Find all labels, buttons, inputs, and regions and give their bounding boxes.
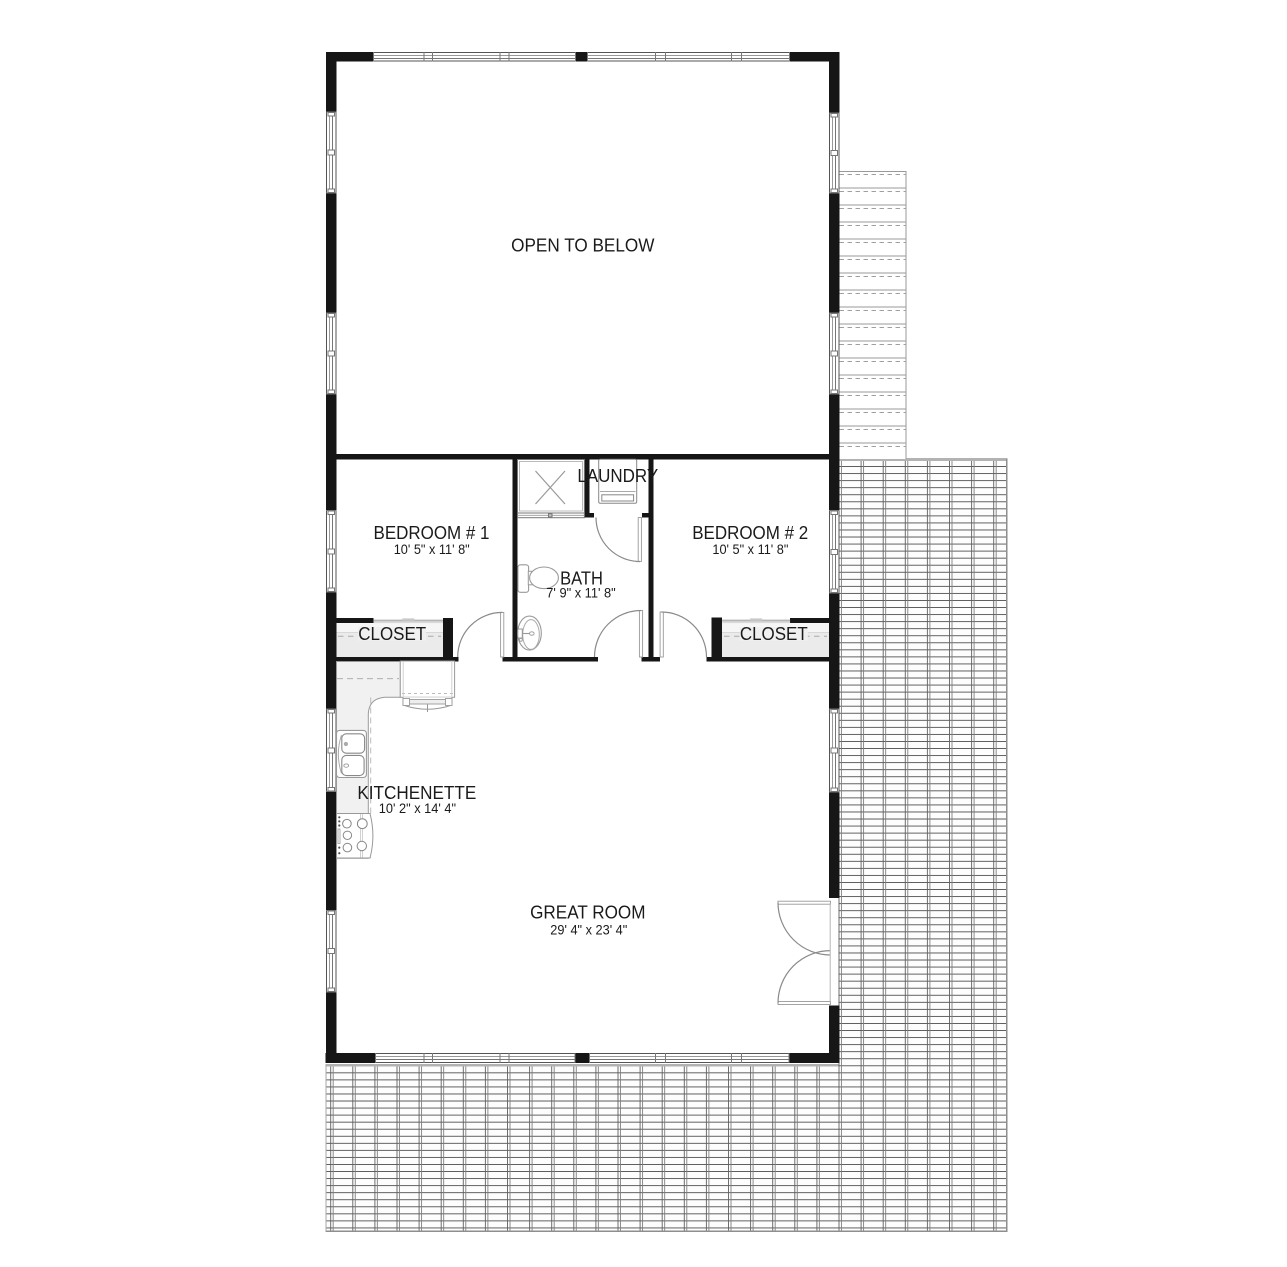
svg-text:29' 4" x 23' 4": 29' 4" x 23' 4" [550,922,627,937]
svg-text:10' 2" x 14' 4": 10' 2" x 14' 4" [379,801,456,816]
svg-text:BEDROOM # 1: BEDROOM # 1 [374,523,490,543]
svg-text:CLOSET: CLOSET [358,624,426,644]
svg-text:10' 5" x 11' 8": 10' 5" x 11' 8" [712,542,788,557]
svg-text:OPEN TO BELOW: OPEN TO BELOW [511,236,654,256]
svg-text:BEDROOM # 2: BEDROOM # 2 [692,523,808,543]
svg-text:LAUNDRY: LAUNDRY [577,466,658,486]
svg-text:GREAT ROOM: GREAT ROOM [530,903,645,923]
svg-text:CLOSET: CLOSET [740,624,808,644]
svg-text:KITCHENETTE: KITCHENETTE [357,783,476,803]
svg-text:7' 9" x 11' 8": 7' 9" x 11' 8" [546,585,616,600]
svg-text:10' 5" x 11' 8": 10' 5" x 11' 8" [394,542,470,557]
